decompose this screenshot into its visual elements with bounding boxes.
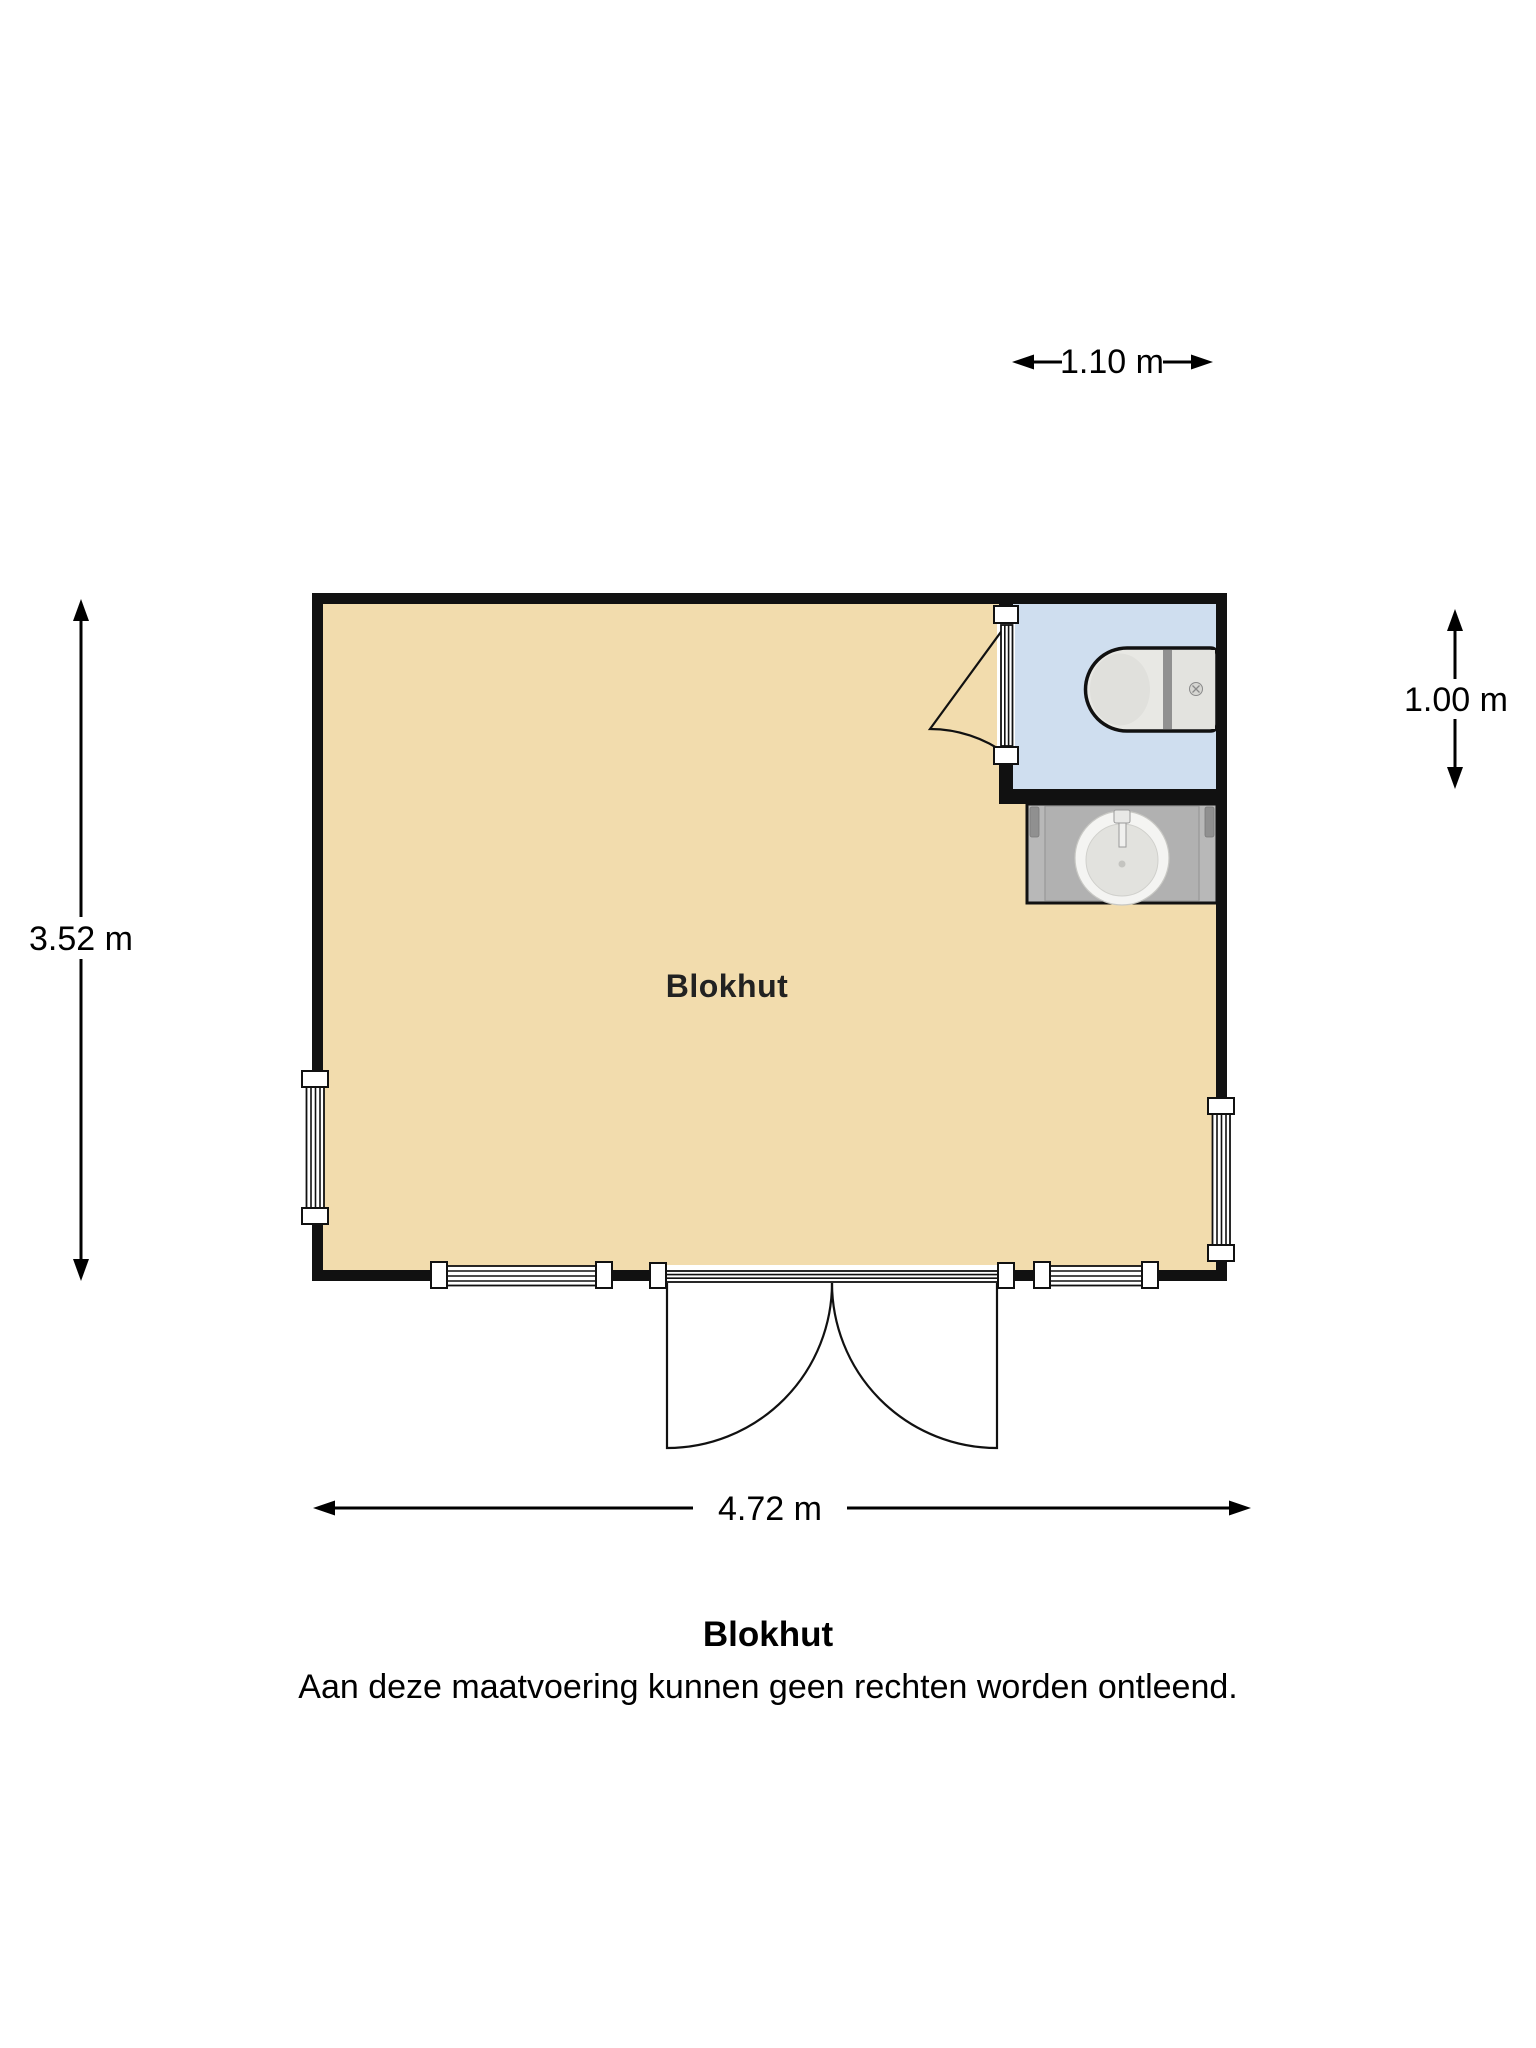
bathroom-door-leaf: [1001, 625, 1013, 746]
window-jamb: [1142, 1262, 1158, 1288]
faucet-spout: [1119, 823, 1126, 847]
toilet-bowl: [1090, 654, 1150, 726]
entrance-double-door: [650, 1263, 1014, 1448]
dimension-label: 1.10 m: [1060, 343, 1164, 381]
door-swing-arc-right: [832, 1283, 997, 1448]
entrance-threshold: [666, 1271, 998, 1282]
window-jamb: [1208, 1245, 1234, 1261]
dimension-bathroom-depth: 1.00 m: [1396, 609, 1516, 789]
dimension-building-depth: 3.52 m: [22, 599, 142, 1281]
toilet-seam: [1163, 650, 1172, 729]
faucet-base: [1114, 810, 1130, 823]
caption-title: Blokhut: [703, 1615, 834, 1654]
dimension-label: 4.72 m: [718, 1490, 822, 1528]
door-swing-arc-left: [667, 1283, 832, 1448]
arrow-up-icon: [73, 599, 89, 621]
left-window: [302, 1071, 328, 1224]
bottom-window-right: [1034, 1262, 1158, 1288]
door-jamb: [994, 606, 1018, 623]
dimension-bathroom-width: 1.10 m: [1012, 343, 1213, 381]
arrow-down-icon: [73, 1259, 89, 1281]
arrow-up-icon: [1447, 609, 1463, 631]
arrow-right-icon: [1229, 1501, 1251, 1516]
door-jamb: [650, 1263, 666, 1288]
bathroom-bottom-wall: [999, 789, 1227, 804]
window-jamb: [1034, 1262, 1050, 1288]
dimension-building-width: 4.72 m: [313, 1487, 1251, 1529]
sink-icon: [1027, 804, 1217, 905]
arrow-left-icon: [313, 1501, 335, 1516]
basin-drain: [1119, 861, 1126, 868]
caption-disclaimer: Aan deze maatvoering kunnen geen rechten…: [298, 1668, 1237, 1706]
right-window: [1208, 1098, 1234, 1261]
window-jamb: [431, 1262, 447, 1288]
arrow-left-icon: [1012, 355, 1034, 370]
bottom-window-left: [431, 1262, 612, 1288]
window-jamb: [596, 1262, 612, 1288]
room-label: Blokhut: [666, 968, 789, 1004]
door-jamb: [998, 1263, 1014, 1288]
dimension-label: 1.00 m: [1404, 681, 1508, 719]
floor-plan-page: Blokhut 1.10 m 1.00 m 3.52 m: [0, 0, 1536, 2048]
window-jamb: [302, 1208, 328, 1224]
window-jamb: [302, 1071, 328, 1087]
dimension-label: 3.52 m: [29, 920, 133, 958]
floor-plan-canvas: Blokhut 1.10 m 1.00 m 3.52 m: [0, 0, 1536, 2048]
door-jamb: [994, 747, 1018, 764]
toilet-icon: [1086, 648, 1218, 731]
arrow-right-icon: [1191, 355, 1213, 370]
window-jamb: [1208, 1098, 1234, 1114]
counter-bracket: [1205, 807, 1214, 837]
arrow-down-icon: [1447, 767, 1463, 789]
counter-bracket: [1030, 807, 1039, 837]
